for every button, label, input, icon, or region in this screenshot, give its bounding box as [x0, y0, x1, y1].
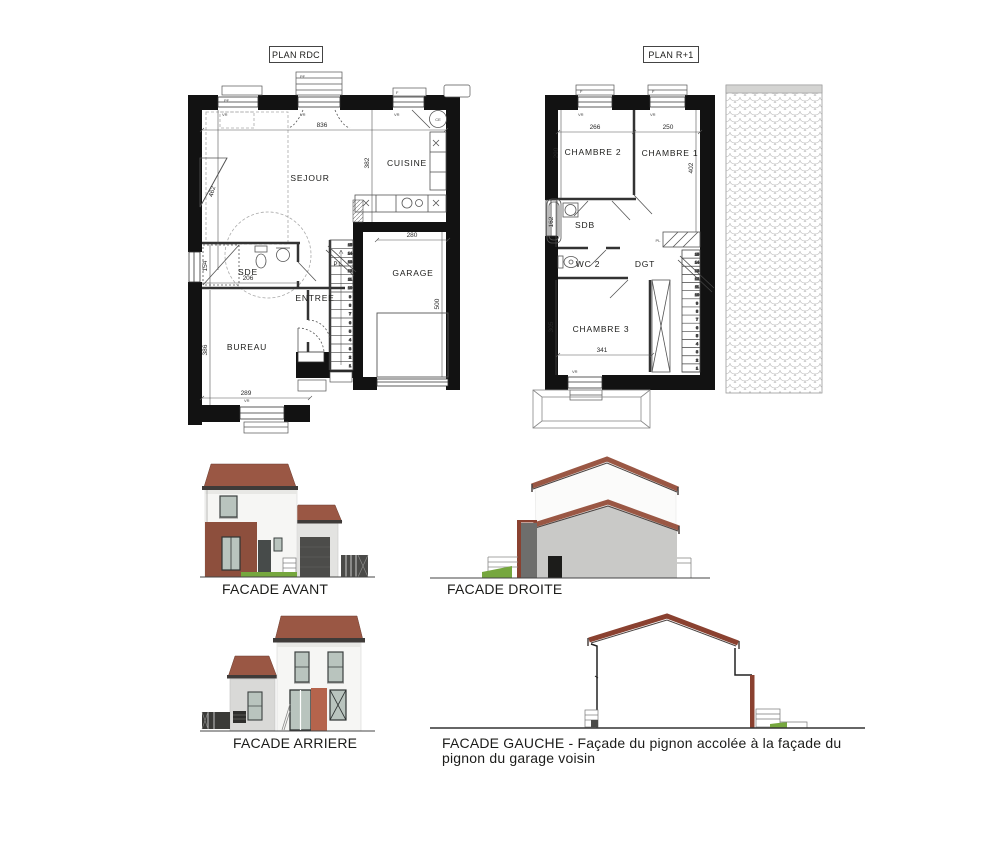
droite-neighbour-edge — [517, 520, 537, 578]
dim-289: 289 — [241, 390, 252, 397]
droite-terrace-left — [482, 557, 518, 578]
svg-text:8: 8 — [349, 304, 351, 308]
room-chambre2: CHAMBRE 2 — [565, 147, 622, 157]
pf-label-1: PF — [224, 98, 230, 103]
svg-text:8: 8 — [696, 310, 698, 314]
rdc-walls — [188, 95, 460, 425]
vr-label-r1-3: VR — [572, 369, 578, 374]
gauche-neighbour-pignon — [750, 675, 755, 728]
dim-836: 836 — [317, 122, 328, 129]
svg-text:10: 10 — [348, 286, 352, 290]
r1-door-leaves — [574, 195, 652, 298]
garage-door-plan — [377, 313, 448, 377]
gauche-terrace-right — [756, 709, 807, 728]
plan-rdc-drawing: CE 123456789101112131415 — [180, 40, 480, 440]
dim-266: 266 — [590, 124, 601, 131]
arriere-fence — [202, 712, 230, 729]
facade-avant-label-text: FACADE AVANT — [222, 581, 328, 597]
facade-droite-label-text: FACADE DROITE — [447, 581, 562, 597]
svg-text:3: 3 — [349, 347, 351, 351]
svg-text:3: 3 — [696, 350, 698, 354]
avant-garage — [290, 505, 342, 577]
sejour-corner-unit — [200, 158, 227, 207]
room-garage: GARAGE — [392, 268, 433, 278]
vr-label-r1-1: VR — [578, 112, 584, 117]
room-placard-rdc: PL — [334, 262, 343, 268]
facade-droite-label: FACADE DROITE — [447, 582, 562, 597]
room-sde: SDE — [238, 267, 258, 277]
svg-text:9: 9 — [349, 295, 351, 299]
pf-label-2: PF — [300, 74, 306, 79]
svg-text:6: 6 — [696, 326, 698, 330]
svg-text:1: 1 — [349, 364, 351, 368]
room-wc2: WC 2 — [576, 259, 600, 269]
room-placard-r1: PL — [656, 238, 662, 243]
r1-placard — [652, 232, 700, 372]
facade-arriere-label: FACADE ARRIERE — [233, 736, 357, 751]
architectural-sheet: PLAN RDC PLAN R+1 — [0, 0, 1000, 857]
r1-walls — [545, 95, 715, 390]
droite-railing-right — [677, 558, 691, 578]
room-chambre3: CHAMBRE 3 — [573, 324, 630, 334]
facade-gauche-label-text: FACADE GAUCHE - Façade du pignon accolée… — [442, 735, 841, 766]
gauche-roof — [588, 616, 739, 649]
arriere-main-house — [273, 616, 365, 731]
svg-text:7: 7 — [696, 318, 698, 322]
facade-avant-drawing — [195, 450, 385, 600]
svg-text:12: 12 — [695, 277, 699, 281]
svg-text:12: 12 — [348, 269, 352, 273]
svg-text:7: 7 — [349, 312, 351, 316]
gauche-entry-left — [585, 710, 598, 727]
facade-avant-label: FACADE AVANT — [222, 582, 328, 597]
dim-280: 280 — [407, 232, 418, 239]
dim-341: 341 — [597, 347, 608, 354]
dim-386: 386 — [202, 344, 209, 355]
vr-label-2: VR — [300, 112, 306, 117]
svg-text:5: 5 — [696, 334, 698, 338]
plan-r1-drawing: PL 123456789101112131415 — [530, 40, 860, 440]
vr-label-r1-2: VR — [650, 112, 656, 117]
rdc-door-leaves — [288, 110, 350, 352]
svg-text:13: 13 — [695, 269, 699, 273]
svg-text:9: 9 — [696, 301, 698, 305]
chauffe-eau-label: CE — [435, 117, 441, 122]
avant-fence — [341, 555, 368, 577]
dim-305: 305 — [548, 321, 555, 332]
svg-text:1: 1 — [696, 366, 698, 370]
avant-main-house — [202, 464, 298, 577]
neighbour-roof-tiles — [726, 85, 822, 393]
dim-250: 250 — [663, 124, 674, 131]
room-cuisine: CUISINE — [387, 158, 427, 168]
svg-text:4: 4 — [696, 342, 698, 346]
r1-windows — [546, 97, 685, 388]
svg-text:2: 2 — [696, 358, 698, 362]
facade-gauche-label: FACADE GAUCHE - Façade du pignon accolée… — [442, 736, 860, 766]
sejour-furniture-dashed — [206, 112, 311, 298]
dim-402: 402 — [688, 162, 695, 173]
svg-text:14: 14 — [695, 261, 699, 265]
svg-text:13: 13 — [348, 260, 352, 264]
svg-text:11: 11 — [348, 278, 352, 282]
gauche-walls — [591, 644, 752, 728]
room-sejour: SEJOUR — [290, 173, 329, 183]
vr-label-1: VR — [222, 112, 228, 117]
svg-text:15: 15 — [695, 253, 699, 257]
svg-text:14: 14 — [348, 252, 352, 256]
room-chambre1: CHAMBRE 1 — [642, 148, 699, 158]
dim-290: 290 — [553, 147, 560, 158]
room-dgt: DGT — [635, 259, 655, 269]
vr-label-3: VR — [394, 112, 400, 117]
dim-162: 162 — [548, 216, 555, 227]
vr-label-4: VR — [244, 398, 250, 403]
room-sdb: SDB — [575, 220, 595, 230]
svg-text:5: 5 — [349, 330, 351, 334]
svg-text:4: 4 — [349, 338, 351, 342]
dim-462: 462 — [208, 185, 218, 198]
svg-text:2: 2 — [349, 356, 351, 360]
dim-500: 500 — [434, 298, 441, 309]
room-bureau: BUREAU — [227, 342, 267, 352]
svg-text:10: 10 — [695, 293, 699, 297]
svg-text:6: 6 — [349, 321, 351, 325]
svg-text:15: 15 — [348, 243, 352, 247]
facade-arriere-label-text: FACADE ARRIERE — [233, 735, 357, 751]
room-entree: ENTREE — [295, 293, 334, 303]
dim-382: 382 — [364, 157, 371, 168]
dim-154: 154 — [202, 260, 209, 271]
arriere-garage — [227, 656, 278, 731]
svg-text:11: 11 — [695, 285, 699, 289]
rdc-hatched-pier — [353, 200, 363, 222]
facade-droite-drawing — [425, 450, 715, 600]
